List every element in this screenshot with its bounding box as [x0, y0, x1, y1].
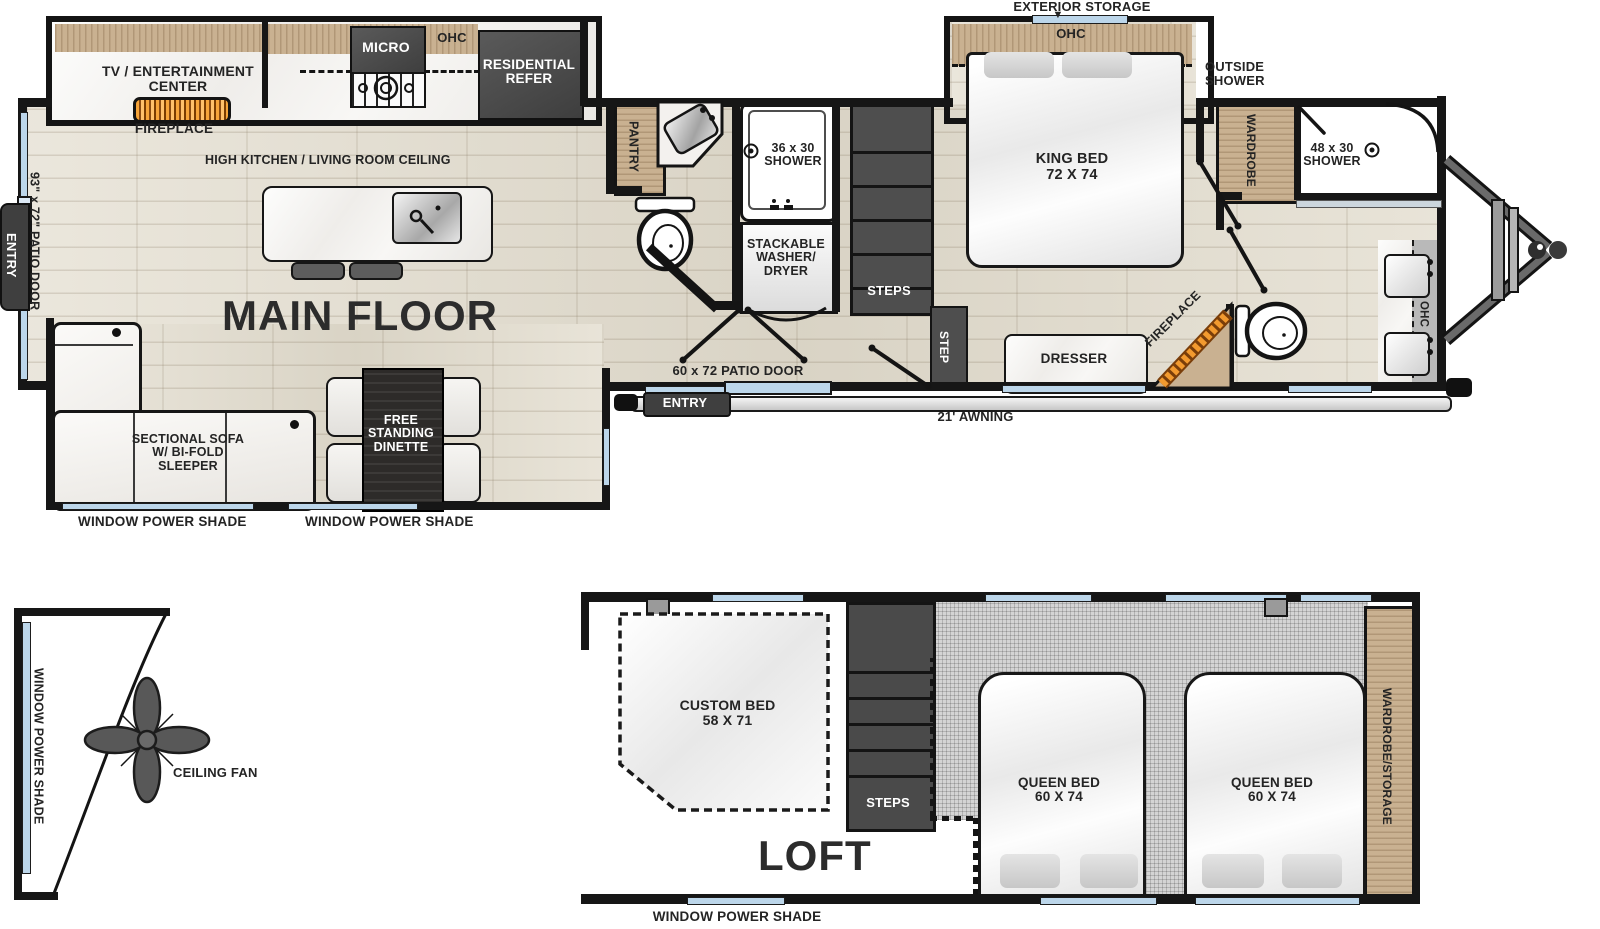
rear-entry-step-box — [614, 394, 638, 411]
loft-top-window-4 — [1300, 594, 1372, 602]
sofa-pillow-dot-1 — [112, 328, 121, 337]
awning-bar — [630, 396, 1452, 412]
loft-bottom-window-3 — [1195, 897, 1360, 905]
ceiling-fan-label: CEILING FAN — [173, 766, 283, 780]
exterior-storage-arrow: ▼ — [1048, 10, 1068, 22]
pantry-cabinet — [614, 102, 666, 196]
loft-railing-bottom — [930, 816, 978, 821]
pantry-left-wall — [606, 100, 614, 192]
step-tread-line — [853, 219, 931, 222]
side-patio-door-label: 93" x 72" PATIO DOOR — [27, 172, 40, 310]
dresser-wall-window — [1002, 385, 1146, 393]
loft-wall-left-stub — [581, 592, 589, 650]
loft-wall-right — [1412, 592, 1420, 904]
ceiling-fan-icon — [85, 678, 209, 802]
island-stool-2 — [349, 262, 403, 280]
cooktop — [350, 72, 426, 108]
refrigerator-label: RESIDENTIAL REFER — [480, 58, 578, 87]
loft-step-tread-line — [849, 697, 933, 700]
wardrobe-bottom-stub2 — [1216, 192, 1224, 230]
loft-shade-label: WINDOW POWER SHADE — [652, 910, 822, 924]
step-tread-line — [853, 253, 931, 256]
main-floor-title: MAIN FLOOR — [222, 294, 432, 339]
rear-patio-door — [724, 381, 832, 395]
king-bed-label: KING BED 72 X 74 — [1012, 152, 1132, 183]
shower48-threshold — [1296, 200, 1442, 208]
sofa-slide-window-2 — [288, 503, 418, 510]
single-step-label: STEP — [937, 322, 950, 372]
wall-top-mid — [583, 98, 953, 107]
tv-cabinet-wood — [55, 24, 262, 52]
loft-bottom-window-2 — [1040, 897, 1157, 905]
loft-step-tread-line — [849, 775, 933, 778]
loft-top-window-2 — [985, 594, 1092, 602]
microwave-label: MICRO — [352, 40, 420, 55]
dresser-label: DRESSER — [1006, 352, 1142, 366]
exterior-storage-label: EXTERIOR STORAGE — [1008, 0, 1156, 14]
dinette-slide-window — [603, 428, 610, 486]
rear-entry-label: ENTRY — [645, 396, 725, 410]
loft-wardrobe-label: WARDROBE/STORAGE — [1380, 688, 1393, 825]
washer-dryer-label: STACKABLE WASHER/ DRYER — [742, 238, 830, 278]
cap-shade-label: WINDOW POWER SHADE — [31, 668, 44, 824]
queen-bed-right-label: QUEEN BED 60 X 74 — [1196, 776, 1348, 805]
loft-step-tread-line — [849, 723, 933, 726]
outside-shower-label: OUTSIDE SHOWER — [1205, 60, 1285, 88]
queen-right-pillow-1 — [1202, 854, 1264, 888]
king-pillow-1 — [984, 52, 1054, 78]
wall-front — [1437, 96, 1446, 391]
roof-vent-2 — [1264, 598, 1288, 617]
sofa-slide-window-1 — [62, 503, 254, 510]
sofa-pillow-dot-2 — [290, 420, 299, 429]
loft-top-window-1 — [712, 594, 804, 602]
island-stool-1 — [291, 262, 345, 280]
loft-step-tread-line — [849, 749, 933, 752]
vanity-ohc-label: OHC — [1417, 296, 1429, 332]
wall-top-right — [1196, 98, 1445, 107]
fireplace-living-label: FIREPLACE — [124, 122, 224, 136]
shower-36x30-label: 36 x 30 SHOWER — [758, 142, 828, 169]
king-pillow-2 — [1062, 52, 1132, 78]
loft-bottom-window-1 — [687, 897, 785, 905]
kingbed-ohc-label: OHC — [1046, 27, 1096, 41]
loft-steps-label: STEPS — [848, 796, 928, 810]
frontbath-wall-window — [1288, 385, 1372, 393]
kitchen-cabinet-dash — [300, 70, 352, 73]
rear-wardrobe-label: WARDROBE — [1244, 112, 1257, 188]
sofa-cushion-line-1 — [55, 344, 133, 346]
bedroom-bath-wall — [1196, 104, 1204, 162]
island-sink — [392, 192, 462, 244]
high-ceiling-label: HIGH KITCHEN / LIVING ROOM CEILING — [205, 154, 440, 167]
rear-wardrobe — [1216, 100, 1300, 204]
dinette-label: FREE STANDING DINETTE — [364, 414, 438, 454]
queen-right-pillow-2 — [1282, 854, 1342, 888]
loft-step-tread-line — [849, 671, 933, 674]
awning-label: 21' AWNING — [928, 410, 1023, 424]
loft-railing-right — [930, 658, 935, 818]
bath-shower-wall-right — [832, 100, 840, 312]
queen-left-pillow-2 — [1080, 854, 1138, 888]
kitchen-cabinet-dash2 — [424, 70, 480, 73]
side-entry-label: ENTRY — [4, 224, 18, 286]
shade-label-right: WINDOW POWER SHADE — [305, 515, 465, 529]
sofa-label: SECTIONAL SOFA W/ BI-FOLD SLEEPER — [118, 433, 258, 473]
kingbed-slide-window — [1032, 15, 1128, 24]
kitchen-right-wall — [580, 20, 588, 106]
pantry-bottom-wall — [606, 186, 642, 194]
loft-railing-down — [973, 818, 978, 896]
shade-label-left: WINDOW POWER SHADE — [78, 515, 243, 529]
step-tread-line — [853, 185, 931, 188]
cap-window — [22, 622, 31, 874]
sofa-slide-wall-left — [46, 318, 54, 510]
fireplace-living — [133, 97, 231, 123]
cap-wall-top — [14, 608, 170, 616]
queen-bed-left-label: QUEEN BED 60 X 74 — [988, 776, 1130, 805]
rv-floorplan-diagram: MICRO OHC RESIDENTIAL REFER TV / ENTERTA… — [0, 0, 1600, 929]
roof-vent-1 — [646, 598, 670, 617]
queen-left-pillow-1 — [1000, 854, 1060, 888]
cap-wall-bottom — [14, 892, 58, 900]
cap-profile-curve — [53, 610, 168, 896]
vanity-sink-1 — [1384, 254, 1430, 298]
hitch — [1446, 160, 1567, 340]
steps-label: STEPS — [852, 284, 926, 298]
shower48-bottom-wall — [1294, 193, 1442, 200]
shower-48x30-label: 48 x 30 SHOWER — [1298, 142, 1366, 169]
fireplace-corner-wall — [1226, 304, 1234, 390]
step-tread-line — [853, 151, 931, 154]
custom-bed-label: CUSTOM BED 58 X 71 — [650, 698, 805, 728]
kitchen-ohc-label: OHC — [426, 31, 478, 45]
rear-patio-door-label: 60 x 72 PATIO DOOR — [668, 364, 808, 378]
cap-wall-left — [14, 608, 22, 900]
front-stabilizer — [1446, 378, 1472, 397]
bath-shower-wall-left — [732, 100, 740, 310]
tv-entertainment-label: TV / ENTERTAINMENT CENTER — [92, 64, 264, 94]
pantry-label: PANTRY — [626, 112, 639, 182]
vanity-sink-2 — [1384, 332, 1430, 376]
loft-title: LOFT — [758, 834, 868, 879]
